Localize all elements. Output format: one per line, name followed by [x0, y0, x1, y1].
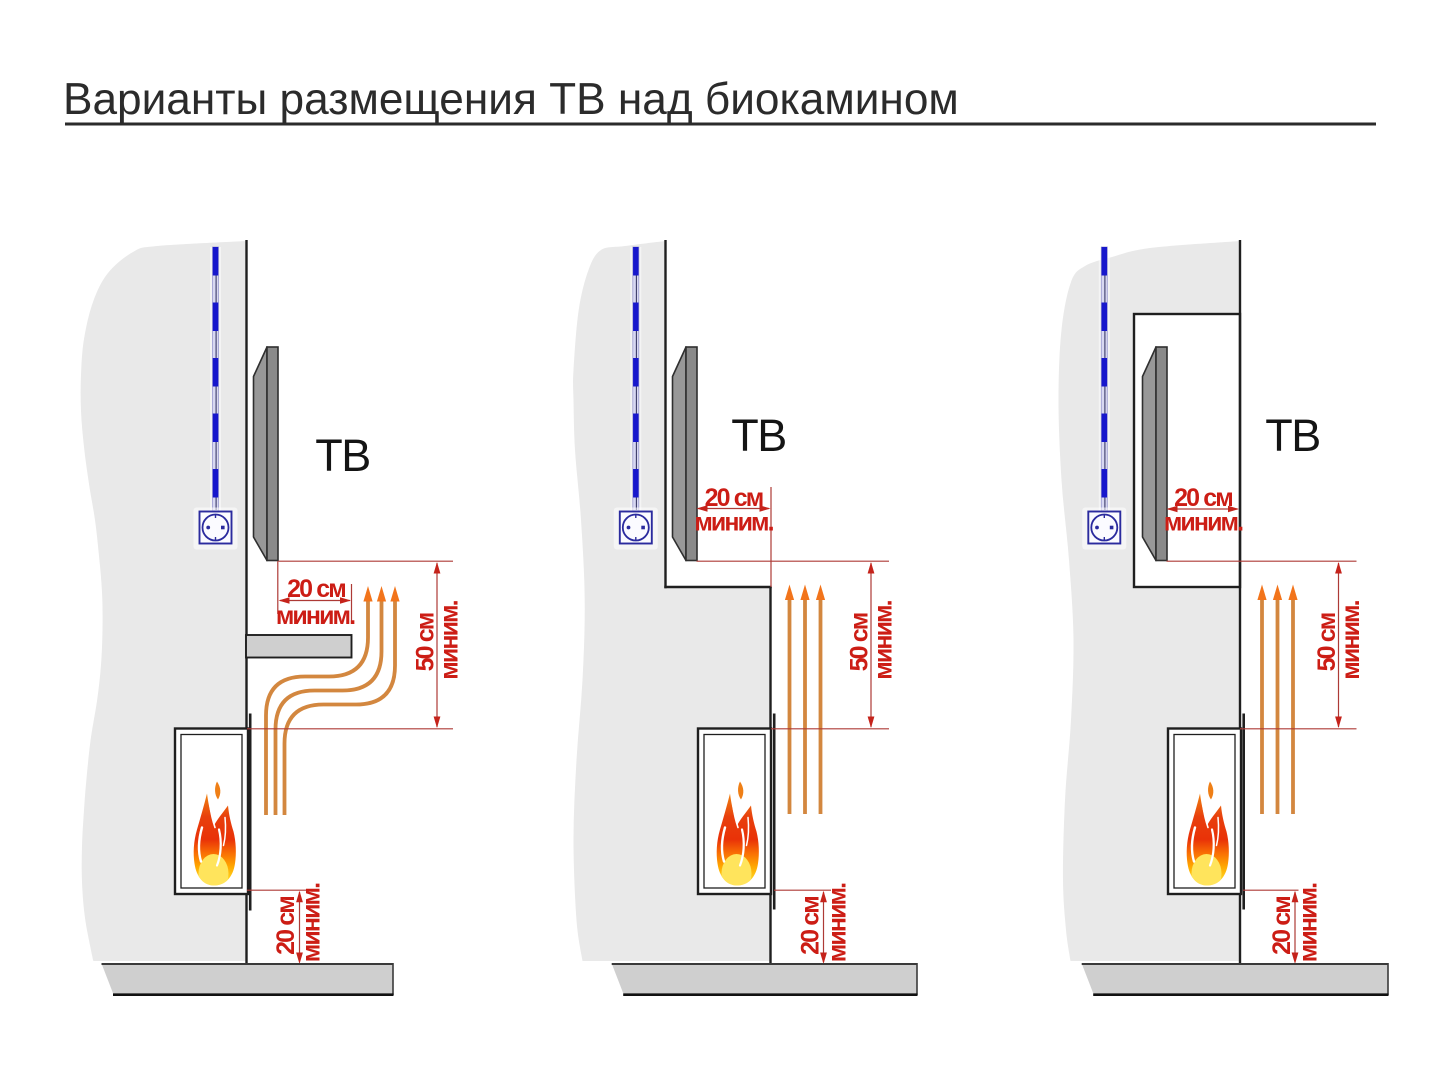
svg-text:миним.: миним.: [298, 883, 326, 962]
svg-text:миним.: миним.: [824, 883, 852, 962]
svg-text:20 см: 20 см: [797, 897, 825, 955]
svg-text:Варианты размещения ТВ над био: Варианты размещения ТВ над биокамином: [63, 75, 959, 124]
svg-text:20 см: 20 см: [287, 575, 345, 603]
svg-text:ТВ: ТВ: [1265, 410, 1320, 461]
svg-text:миним.: миним.: [870, 600, 898, 679]
svg-text:20 см: 20 см: [272, 897, 300, 955]
svg-text:ТВ: ТВ: [731, 410, 786, 461]
svg-text:20 см: 20 см: [1268, 897, 1296, 955]
svg-text:миним.: миним.: [1164, 509, 1243, 537]
svg-text:миним.: миним.: [436, 600, 464, 679]
svg-text:миним.: миним.: [1295, 883, 1323, 962]
svg-text:миним.: миним.: [694, 509, 773, 537]
svg-text:миним.: миним.: [1337, 600, 1365, 679]
svg-text:ТВ: ТВ: [315, 430, 370, 481]
svg-text:миним.: миним.: [276, 602, 355, 630]
